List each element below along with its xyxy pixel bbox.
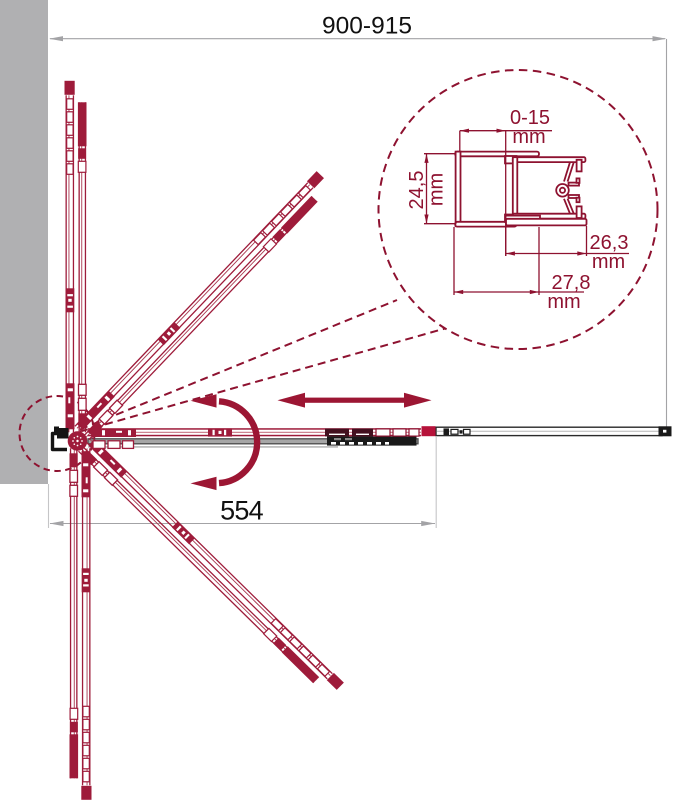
svg-text:mm: mm — [592, 251, 625, 273]
svg-text:mm: mm — [512, 126, 545, 148]
svg-text:mm: mm — [426, 173, 448, 206]
svg-text:554: 554 — [220, 496, 263, 526]
svg-text:mm: mm — [547, 291, 580, 313]
svg-text:900-915: 900-915 — [322, 13, 412, 40]
